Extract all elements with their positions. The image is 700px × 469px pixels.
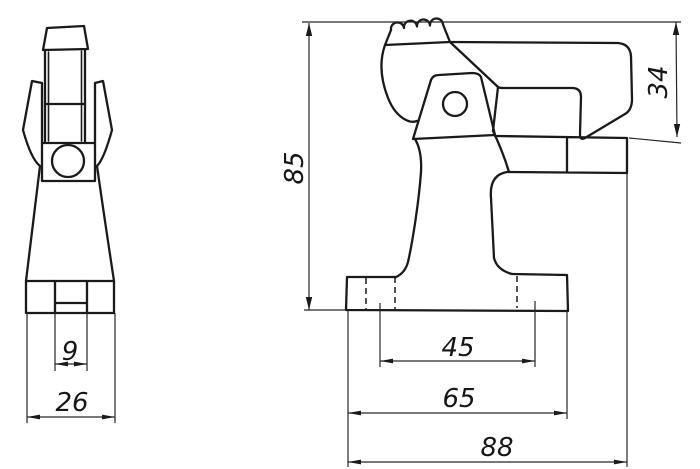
front-left-arm (23, 81, 42, 281)
dim-label-overall-length: 88 (480, 433, 513, 463)
dimension-front-base-width: 26 (27, 388, 115, 419)
arrowhead (348, 411, 361, 416)
side-fixed-jaw-bracket (495, 136, 627, 173)
lever-handle-hook (450, 42, 632, 139)
dimension-hole-spacing: 45 (380, 333, 535, 363)
arrowhead (306, 23, 312, 36)
technical-drawing-canvas: 85 34 9 26 45 (0, 0, 700, 469)
dim-label-hole-spacing: 45 (441, 333, 474, 363)
flange-hidden-hole-lines (366, 276, 517, 309)
dim-label-overall-height: 85 (280, 151, 310, 184)
dimension-overall-length: 88 (348, 433, 627, 464)
arrowhead (614, 460, 627, 465)
arrowhead (554, 411, 567, 416)
side-view (346, 18, 632, 311)
front-base-slot (55, 281, 87, 313)
front-cap-outline (43, 26, 88, 50)
arrowhead (306, 297, 312, 310)
extension-lines (27, 22, 681, 467)
front-spindle-edges (45, 49, 85, 143)
pivot-pin-circle (52, 145, 84, 177)
front-pin-housing (42, 143, 95, 181)
arrowhead (380, 359, 393, 364)
front-right-arm (95, 81, 114, 281)
front-spindle-inner-lines (49, 51, 82, 141)
arrowhead (673, 22, 679, 35)
dim-label-base-length: 65 (442, 384, 475, 414)
dim-label-front-base-width: 26 (55, 388, 88, 418)
side-pivot-link (413, 73, 495, 139)
dim-label-jaw-height: 34 (644, 65, 674, 98)
side-support-arm (491, 172, 512, 274)
arrowhead (348, 460, 361, 465)
arrowhead (27, 415, 40, 420)
front-base-outline (26, 281, 114, 313)
dim-line-34 (676, 22, 677, 137)
pivot-hole-circle (443, 92, 467, 116)
lever-grip-block (385, 25, 450, 46)
dimension-base-length: 65 (348, 384, 567, 415)
lever-left-edge (381, 45, 417, 122)
side-column-left-edge (396, 139, 421, 277)
arrowhead (522, 359, 535, 364)
dimension-annotations: 85 34 9 26 45 (27, 22, 681, 467)
dim-label-slot-width: 9 (62, 337, 79, 367)
front-view (23, 26, 114, 313)
drawing-sheet: 85 34 9 26 45 (0, 0, 700, 469)
dimension-slot-width: 9 (55, 337, 87, 367)
dimension-jaw-height: 34 (644, 22, 680, 137)
dimension-overall-height: 85 (280, 23, 312, 310)
lever-grip-serration (391, 18, 443, 30)
arrowhead (674, 124, 680, 137)
arrowhead (102, 415, 115, 420)
